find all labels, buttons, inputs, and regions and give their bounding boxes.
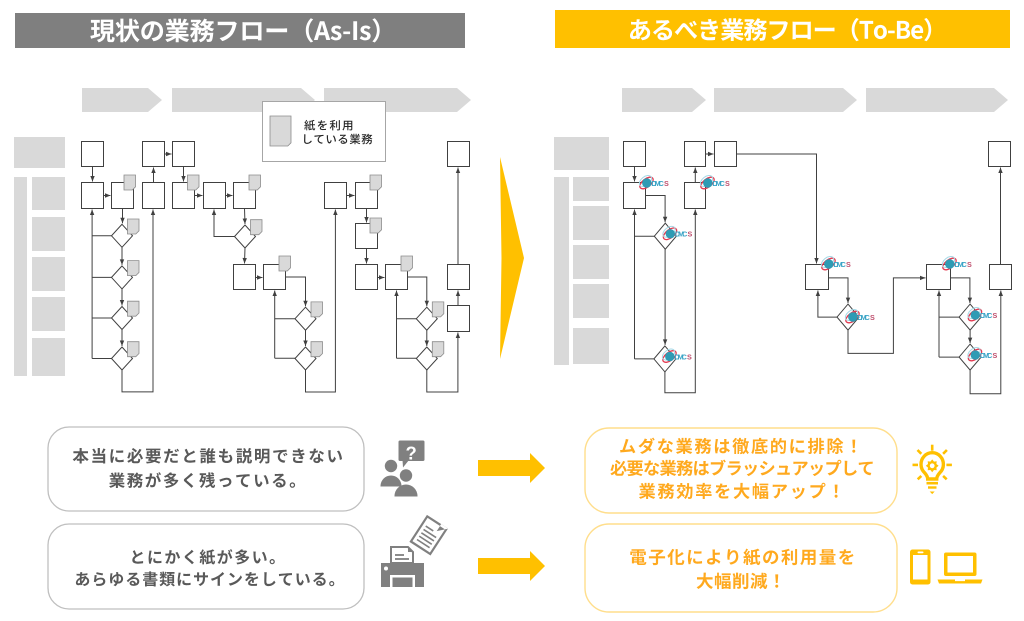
svg-text:?: ?	[406, 443, 417, 464]
